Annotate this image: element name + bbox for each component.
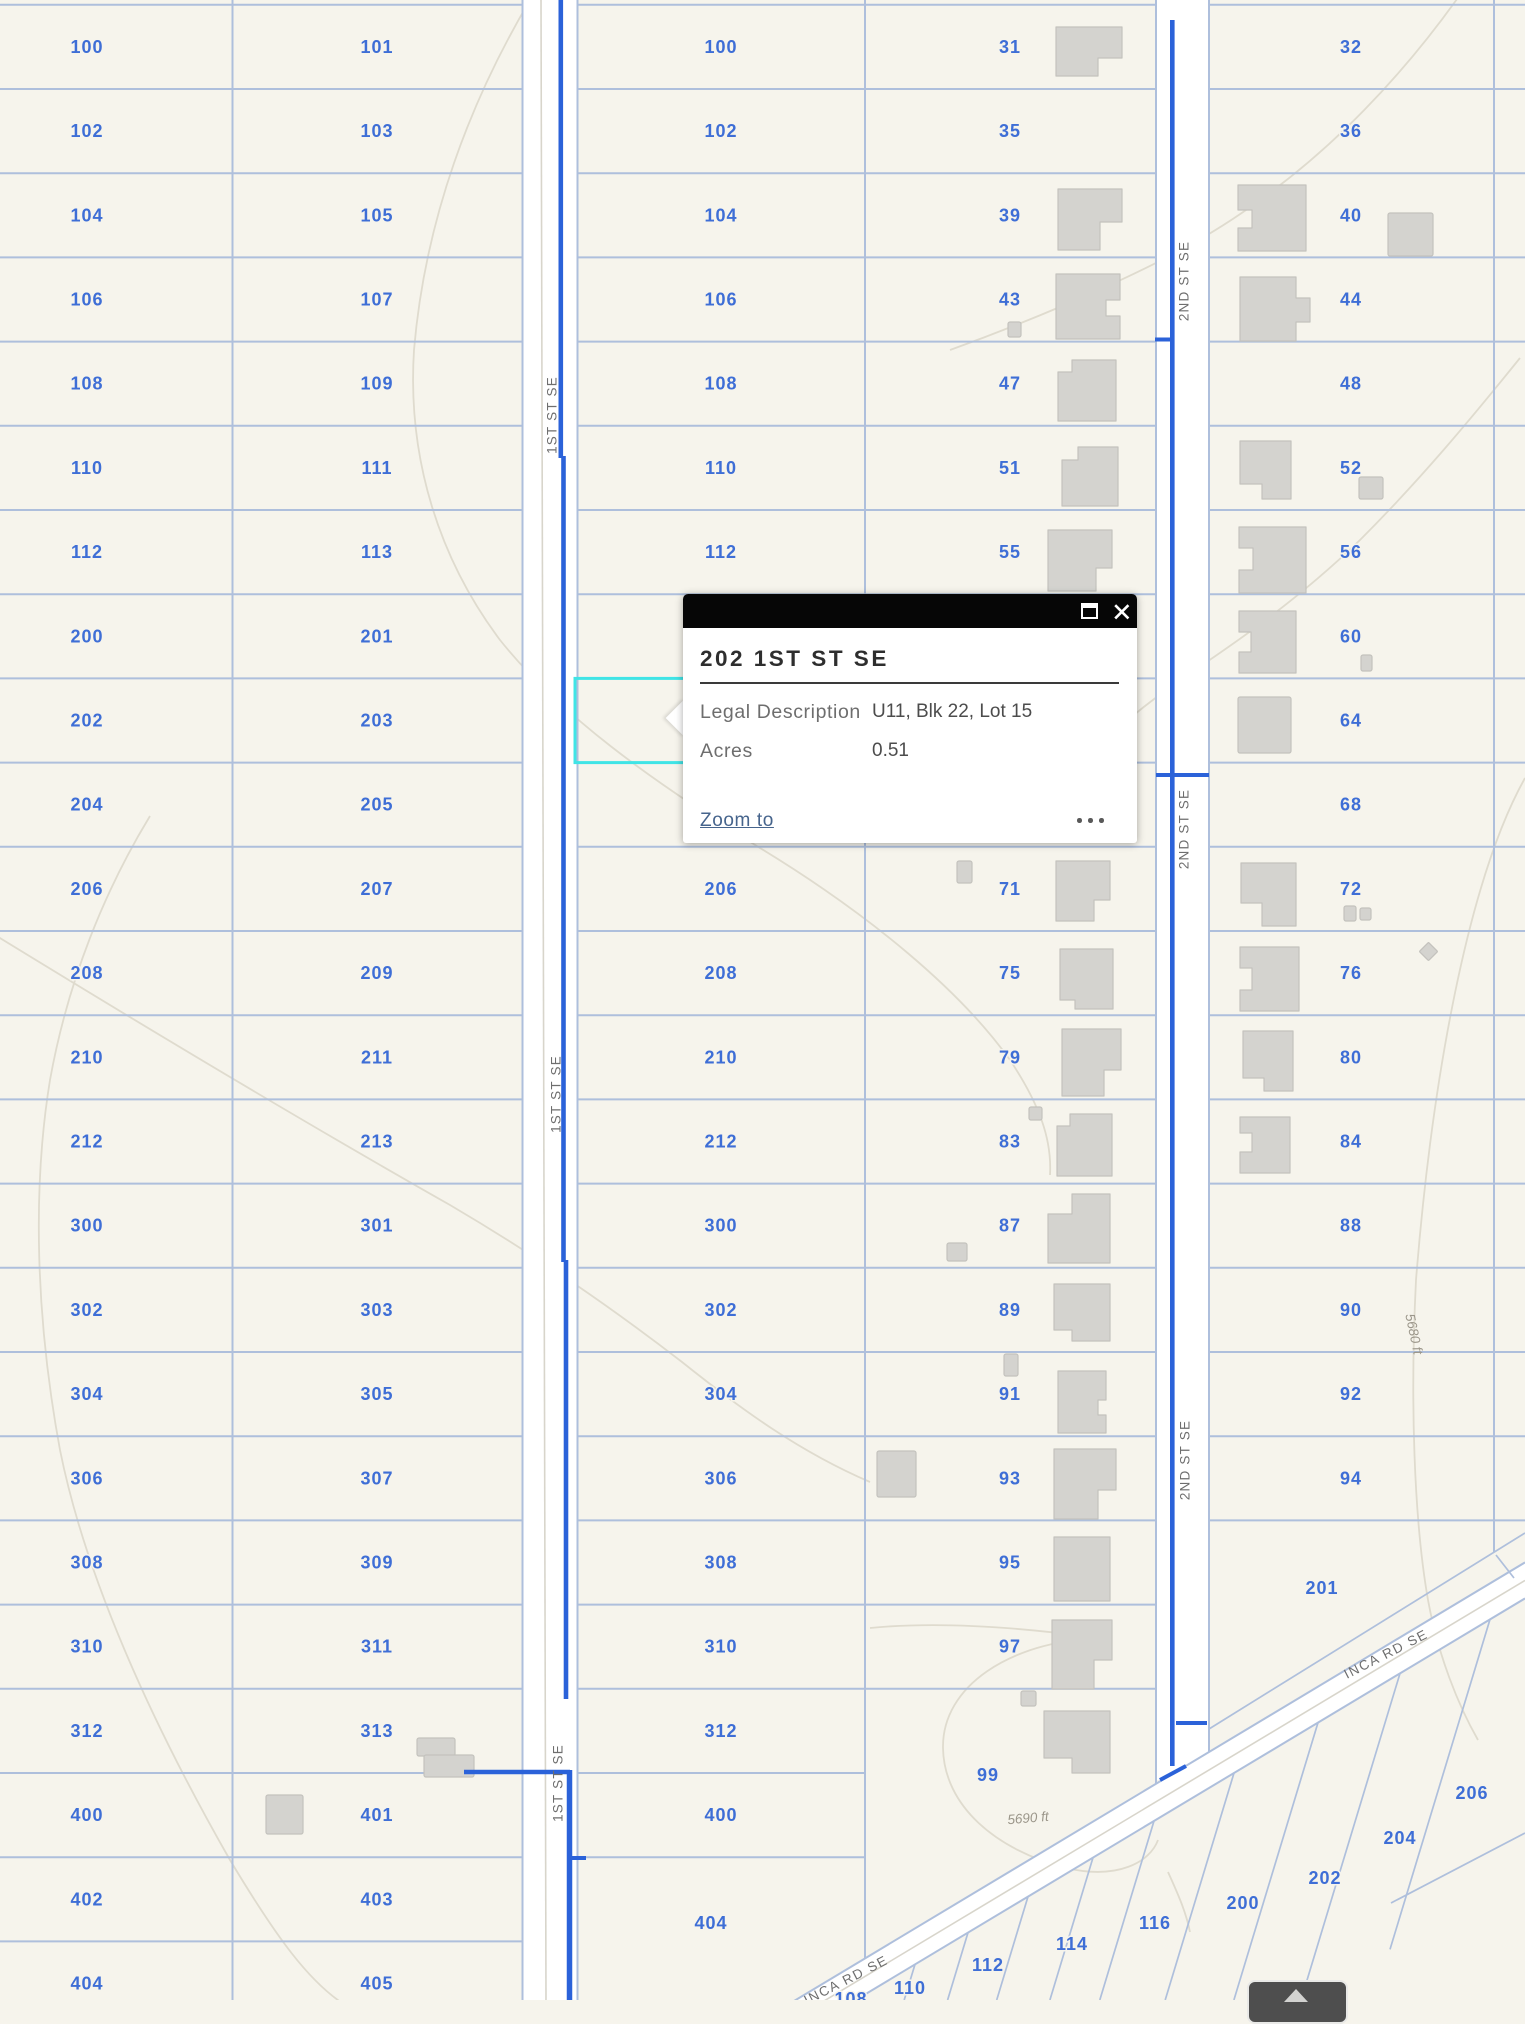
- svg-text:39: 39: [999, 205, 1021, 225]
- svg-text:90: 90: [1340, 1300, 1362, 1320]
- svg-text:302: 302: [704, 1300, 737, 1320]
- svg-text:306: 306: [70, 1468, 103, 1488]
- svg-text:303: 303: [360, 1300, 393, 1320]
- svg-text:304: 304: [70, 1384, 103, 1404]
- svg-text:203: 203: [360, 711, 393, 731]
- svg-text:44: 44: [1340, 290, 1362, 310]
- svg-text:2ND ST SE: 2ND ST SE: [1178, 1420, 1193, 1500]
- svg-text:79: 79: [999, 1047, 1021, 1067]
- svg-text:404: 404: [694, 1913, 727, 1933]
- svg-text:311: 311: [361, 1637, 393, 1657]
- svg-text:93: 93: [999, 1468, 1021, 1488]
- svg-text:202: 202: [1308, 1868, 1341, 1888]
- svg-text:400: 400: [70, 1805, 103, 1825]
- svg-text:87: 87: [999, 1216, 1021, 1236]
- svg-text:36: 36: [1340, 121, 1362, 141]
- svg-text:105: 105: [360, 205, 393, 225]
- svg-text:102: 102: [70, 121, 103, 141]
- svg-text:205: 205: [360, 795, 393, 815]
- svg-text:212: 212: [70, 1132, 103, 1152]
- svg-text:102: 102: [704, 121, 737, 141]
- svg-text:308: 308: [704, 1553, 737, 1573]
- svg-text:302: 302: [70, 1300, 103, 1320]
- svg-text:55: 55: [999, 542, 1021, 562]
- svg-text:404: 404: [70, 1974, 103, 1994]
- svg-text:35: 35: [999, 121, 1021, 141]
- svg-text:306: 306: [704, 1468, 737, 1488]
- svg-text:32: 32: [1340, 37, 1362, 57]
- svg-text:210: 210: [704, 1047, 737, 1067]
- svg-text:114: 114: [1056, 1934, 1088, 1954]
- svg-text:209: 209: [360, 963, 393, 983]
- svg-text:201: 201: [360, 626, 393, 646]
- svg-text:75: 75: [999, 963, 1021, 983]
- svg-text:88: 88: [1340, 1216, 1362, 1236]
- svg-text:204: 204: [1383, 1828, 1416, 1848]
- svg-text:403: 403: [360, 1889, 393, 1909]
- svg-text:2ND ST SE: 2ND ST SE: [1177, 789, 1192, 869]
- svg-text:1ST ST SE: 1ST ST SE: [545, 376, 560, 454]
- svg-text:108: 108: [70, 374, 103, 394]
- svg-text:304: 304: [704, 1384, 737, 1404]
- svg-text:100: 100: [704, 37, 737, 57]
- svg-text:68: 68: [1340, 795, 1362, 815]
- svg-text:43: 43: [999, 290, 1021, 310]
- svg-text:97: 97: [999, 1637, 1021, 1657]
- svg-text:206: 206: [704, 879, 737, 899]
- svg-text:100: 100: [70, 37, 103, 57]
- svg-text:312: 312: [704, 1721, 737, 1741]
- svg-text:108: 108: [704, 374, 737, 394]
- svg-text:40: 40: [1340, 205, 1362, 225]
- svg-text:110: 110: [705, 458, 737, 478]
- svg-text:210: 210: [70, 1047, 103, 1067]
- svg-text:310: 310: [704, 1637, 737, 1657]
- svg-text:211: 211: [361, 1047, 393, 1067]
- svg-text:51: 51: [999, 458, 1021, 478]
- svg-text:106: 106: [70, 290, 103, 310]
- svg-text:83: 83: [999, 1132, 1021, 1152]
- svg-text:310: 310: [70, 1637, 103, 1657]
- svg-text:64: 64: [1340, 711, 1362, 731]
- svg-text:104: 104: [704, 205, 737, 225]
- svg-text:202: 202: [70, 711, 103, 731]
- svg-text:76: 76: [1340, 963, 1362, 983]
- svg-text:112: 112: [705, 542, 737, 562]
- svg-text:72: 72: [1340, 879, 1362, 899]
- svg-text:309: 309: [360, 1553, 393, 1573]
- svg-text:101: 101: [360, 37, 393, 57]
- svg-text:213: 213: [360, 1132, 393, 1152]
- svg-text:84: 84: [1340, 1132, 1362, 1152]
- svg-text:71: 71: [999, 879, 1021, 899]
- svg-text:89: 89: [999, 1300, 1021, 1320]
- svg-text:103: 103: [360, 121, 393, 141]
- svg-text:206: 206: [70, 879, 103, 899]
- svg-text:300: 300: [704, 1216, 737, 1236]
- svg-text:200: 200: [70, 626, 103, 646]
- svg-text:206: 206: [1455, 1783, 1488, 1803]
- svg-text:305: 305: [360, 1384, 393, 1404]
- svg-text:31: 31: [999, 37, 1021, 57]
- svg-text:405: 405: [360, 1974, 393, 1994]
- svg-text:99: 99: [977, 1765, 999, 1785]
- svg-text:56: 56: [1340, 542, 1362, 562]
- svg-text:204: 204: [70, 795, 103, 815]
- svg-text:1ST ST SE: 1ST ST SE: [551, 1744, 566, 1822]
- svg-text:402: 402: [70, 1889, 103, 1909]
- svg-text:313: 313: [360, 1721, 393, 1741]
- svg-text:201: 201: [1305, 1578, 1338, 1598]
- svg-text:60: 60: [1340, 626, 1362, 646]
- svg-text:400: 400: [704, 1805, 737, 1825]
- svg-text:208: 208: [70, 963, 103, 983]
- svg-text:52: 52: [1340, 458, 1362, 478]
- svg-text:207: 207: [360, 879, 393, 899]
- svg-text:94: 94: [1340, 1468, 1362, 1488]
- svg-text:95: 95: [999, 1553, 1021, 1573]
- svg-text:107: 107: [360, 290, 393, 310]
- svg-text:212: 212: [704, 1132, 737, 1152]
- svg-text:110: 110: [71, 458, 103, 478]
- svg-text:301: 301: [360, 1216, 393, 1236]
- svg-text:109: 109: [360, 374, 393, 394]
- svg-text:92: 92: [1340, 1384, 1362, 1404]
- svg-text:1ST ST SE: 1ST ST SE: [549, 1055, 564, 1133]
- svg-text:48: 48: [1340, 374, 1362, 394]
- svg-text:308: 308: [70, 1553, 103, 1573]
- svg-text:91: 91: [999, 1384, 1021, 1404]
- svg-text:111: 111: [361, 458, 392, 478]
- svg-text:300: 300: [70, 1216, 103, 1236]
- svg-text:47: 47: [999, 374, 1021, 394]
- svg-text:200: 200: [1226, 1893, 1259, 1913]
- svg-text:104: 104: [70, 205, 103, 225]
- svg-text:312: 312: [70, 1721, 103, 1741]
- svg-text:110: 110: [894, 1978, 926, 1998]
- svg-text:208: 208: [704, 963, 737, 983]
- svg-text:112: 112: [972, 1955, 1004, 1975]
- svg-text:80: 80: [1340, 1047, 1362, 1067]
- svg-text:112: 112: [71, 542, 103, 562]
- svg-text:401: 401: [360, 1805, 393, 1825]
- svg-text:116: 116: [1139, 1913, 1171, 1933]
- svg-text:106: 106: [704, 290, 737, 310]
- svg-text:2ND ST SE: 2ND ST SE: [1177, 241, 1192, 321]
- svg-text:113: 113: [361, 542, 393, 562]
- svg-text:307: 307: [360, 1468, 393, 1488]
